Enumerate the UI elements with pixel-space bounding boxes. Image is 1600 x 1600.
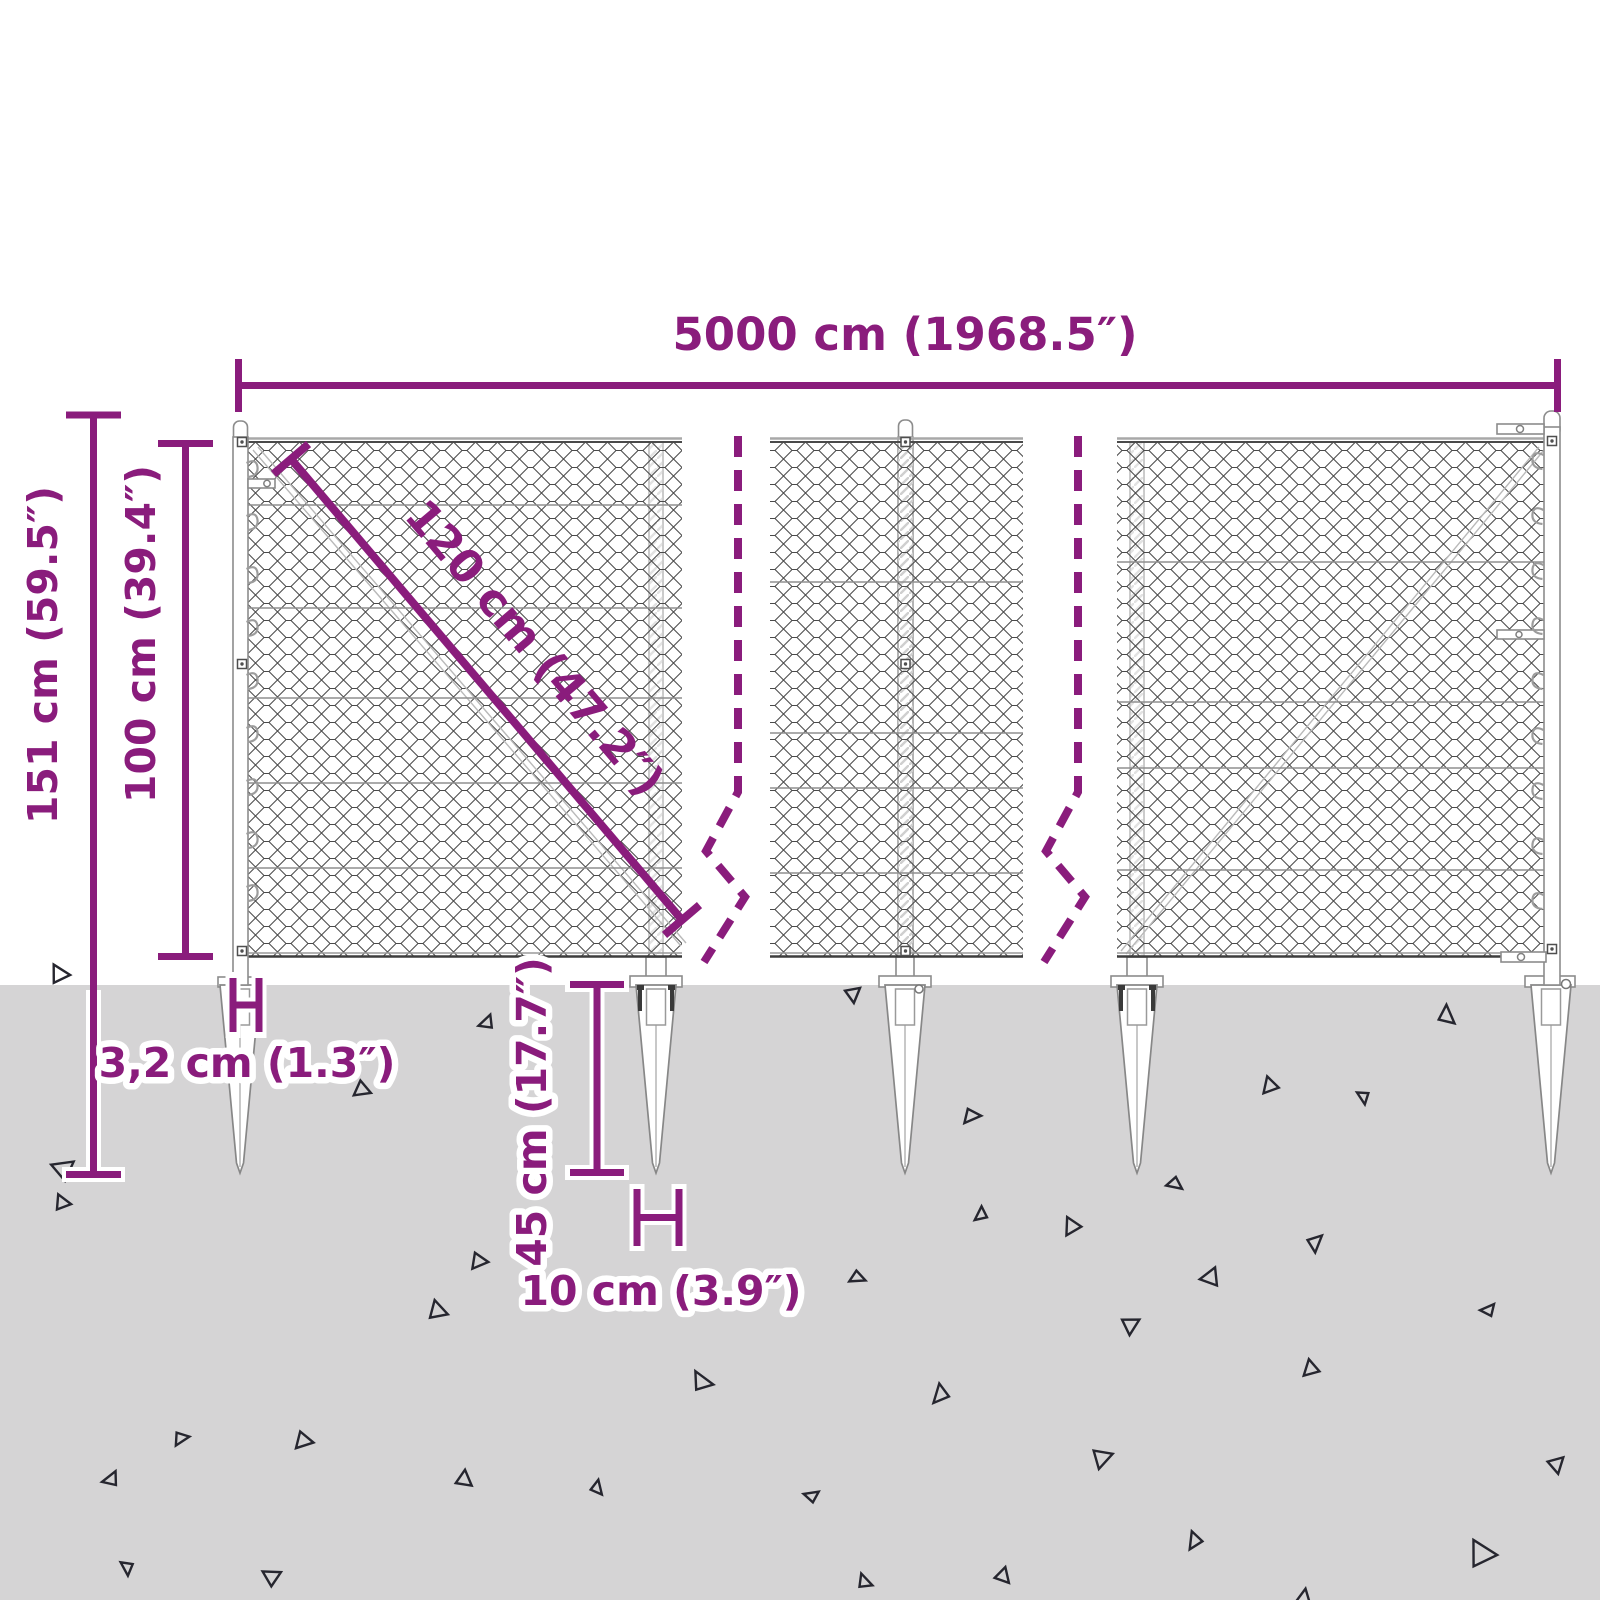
mesh-panel-1	[243, 439, 686, 958]
break-mark-right	[1044, 436, 1085, 962]
dimension-mesh-height: 100 cm (39.4″)	[117, 443, 213, 957]
label-spike-length: 45 cm (17.7″)	[508, 957, 556, 1267]
wire-clip	[901, 660, 910, 669]
diagram-canvas: 5000 cm (1968.5″) 151 cm (59.5″) 100 cm …	[0, 0, 1600, 1600]
mesh-panel-2	[770, 439, 1023, 958]
fence-dimension-diagram: 5000 cm (1968.5″) 151 cm (59.5″) 100 cm …	[0, 0, 1600, 1600]
wire-clip	[901, 438, 910, 447]
ground-triangle	[51, 965, 72, 986]
label-total-width: 5000 cm (1968.5″)	[672, 308, 1137, 361]
label-post-diameter: 3,2 cm (1.3″)	[99, 1039, 396, 1087]
label-total-height: 151 cm (59.5″)	[19, 486, 67, 824]
dimension-total-width: 5000 cm (1968.5″)	[238, 308, 1558, 412]
mesh-panel-3	[1117, 439, 1545, 958]
break-mark-left	[704, 436, 745, 962]
label-mesh-height: 100 cm (39.4″)	[117, 465, 165, 803]
label-spike-width: 10 cm (3.9″)	[520, 1267, 801, 1315]
wire-clip	[901, 947, 910, 956]
